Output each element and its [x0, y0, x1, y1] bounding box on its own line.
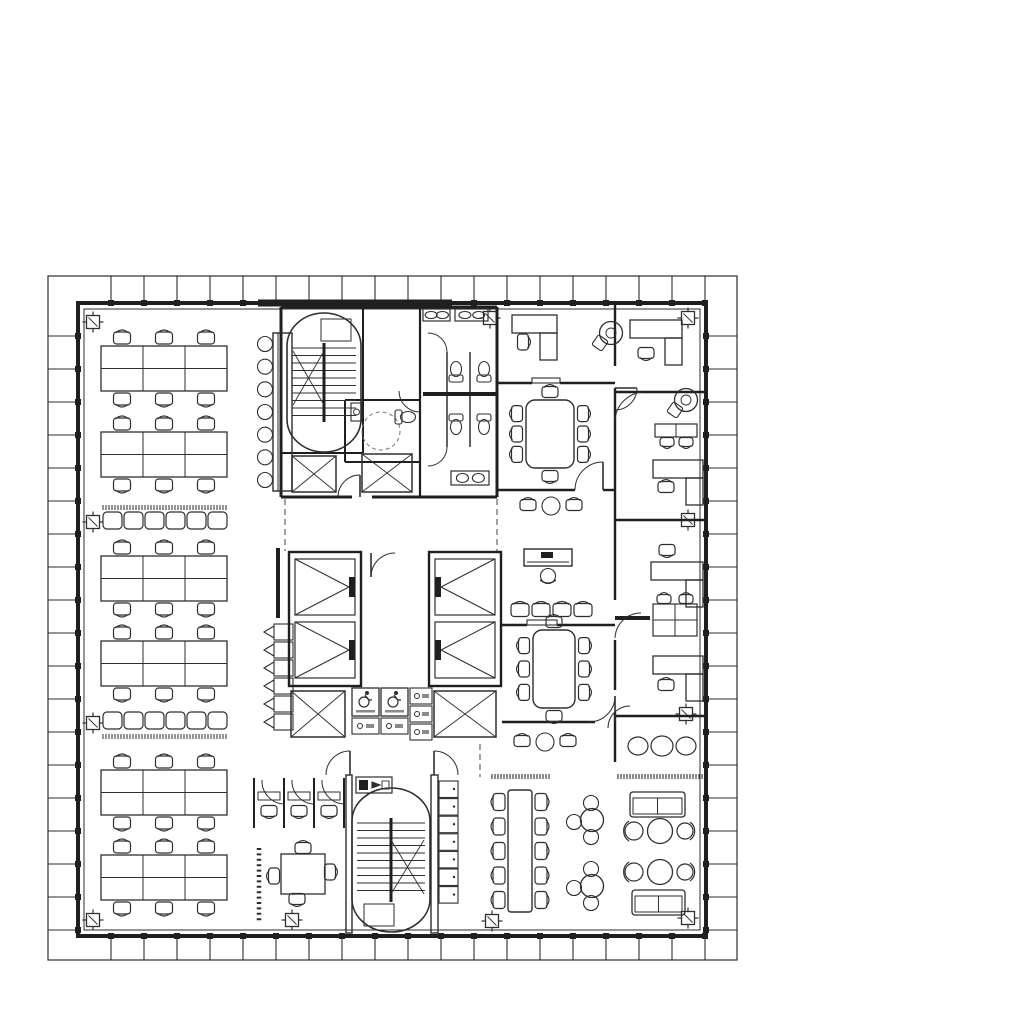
floor-plan-canvas [0, 0, 1024, 1013]
floor-plan-svg [0, 0, 1024, 1013]
floor-plan-sheet [0, 0, 1024, 1013]
